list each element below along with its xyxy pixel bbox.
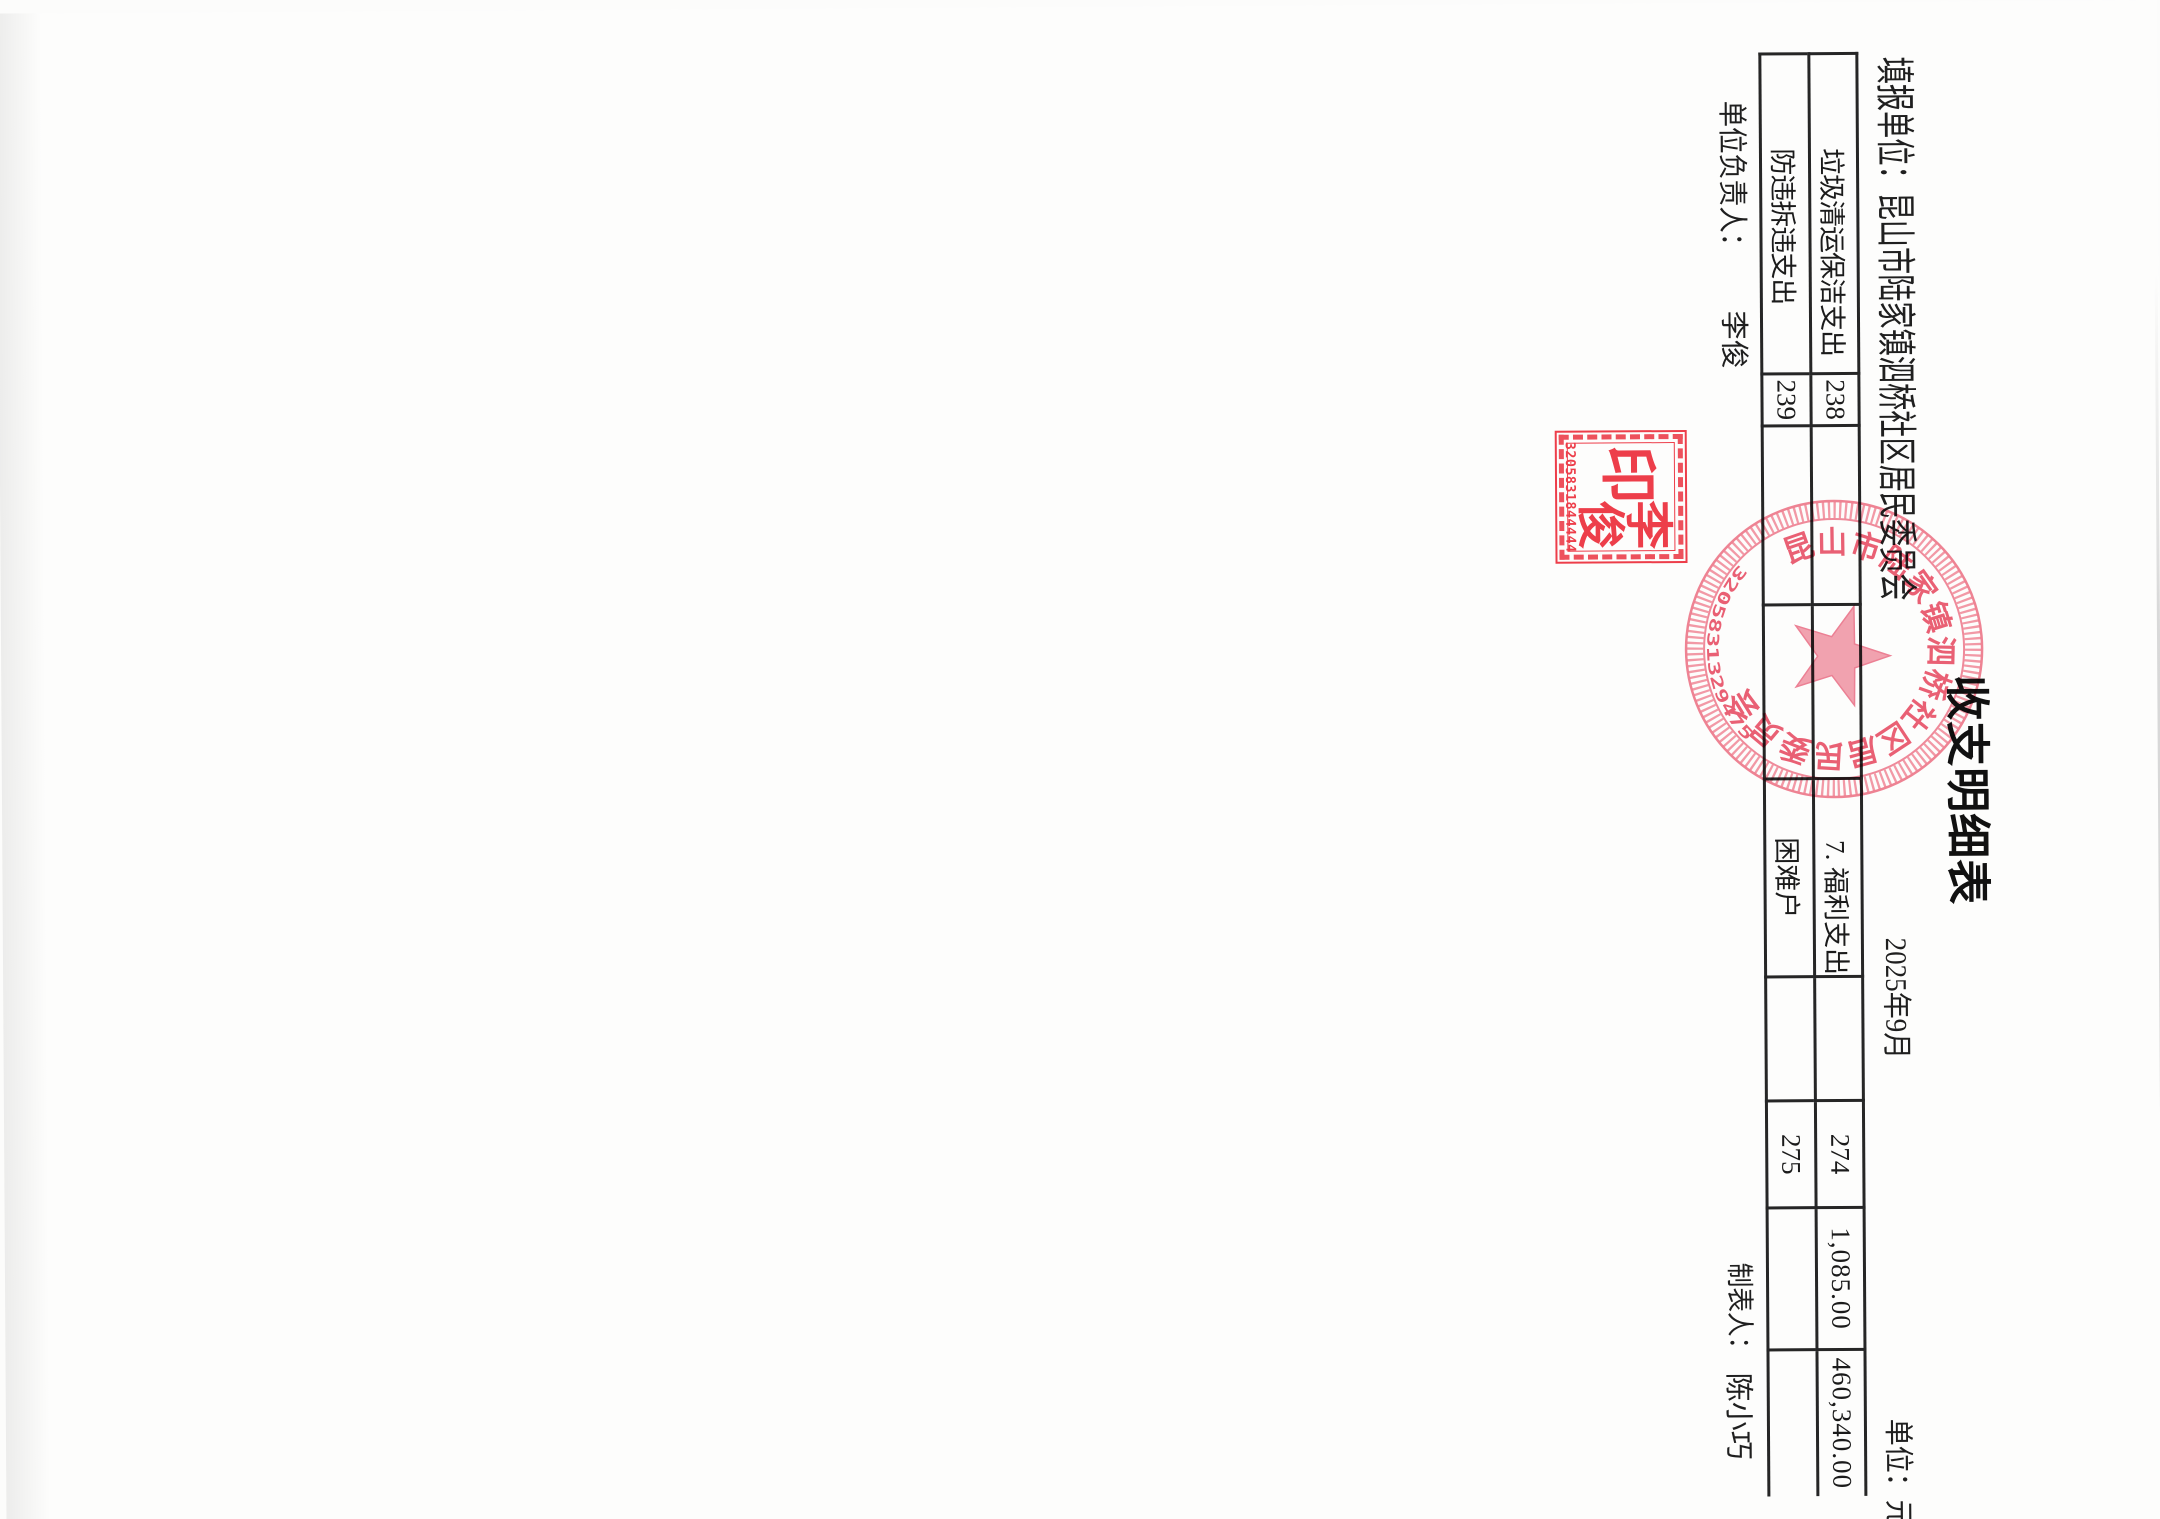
square-name-seal: 印 李 俊 3205831844444 xyxy=(1555,430,1688,564)
cell-amount-total xyxy=(1768,1350,1818,1496)
page-edge-line xyxy=(2153,0,2160,1519)
cell-line-no: 275 xyxy=(1766,1101,1816,1208)
seal-char-jun: 俊 xyxy=(1575,500,1624,549)
responsible-person-label: 单位负责人： xyxy=(1713,101,1758,260)
star-icon xyxy=(1796,606,1891,706)
scan-shadow xyxy=(0,13,51,1519)
cell-amount-month xyxy=(1767,1208,1817,1350)
preparer-name: 陈小巧 xyxy=(1720,1373,1763,1460)
round-seal-graphic: 昆山市陆家镇泗桥社区居民委员会 3205831329475 xyxy=(1673,488,1995,810)
seal-char-li: 李 xyxy=(1623,500,1672,549)
preparer-label: 制表人： xyxy=(1721,1263,1762,1362)
cell-empty xyxy=(1766,977,1816,1101)
cell-empty xyxy=(1815,976,1864,1100)
cell-item-left: 垃圾清运保洁支出 xyxy=(1809,53,1859,373)
cell-line-no: 238 xyxy=(1811,373,1859,425)
cell-amount-month: 1,085.00 xyxy=(1816,1207,1865,1349)
cell-amount-total: 460,340.00 xyxy=(1817,1349,1866,1495)
currency-unit-note: 单位：元 xyxy=(1879,1418,1924,1519)
square-seal-code: 3205831844444 xyxy=(1562,431,1579,564)
cell-item-left: 防违拆违支出 xyxy=(1760,54,1811,374)
responsible-person-name: 李俊 xyxy=(1715,311,1757,369)
report-period: 2025年9月 xyxy=(1877,938,1922,1060)
cell-line-no: 274 xyxy=(1815,1100,1864,1207)
cell-line-no: 239 xyxy=(1762,374,1811,426)
document-page: 收支明细表 填报单位：昆山市陆家镇泗桥社区居民委员会 2025年9月 单位：元 … xyxy=(0,0,2160,1519)
round-official-seal: 昆山市陆家镇泗桥社区居民委员会 3205831329475 xyxy=(1673,488,1995,810)
scanned-document: 收支明细表 填报单位：昆山市陆家镇泗桥社区居民委员会 2025年9月 单位：元 … xyxy=(0,0,2160,1519)
seal-char-yin: 印 xyxy=(1598,445,1656,503)
